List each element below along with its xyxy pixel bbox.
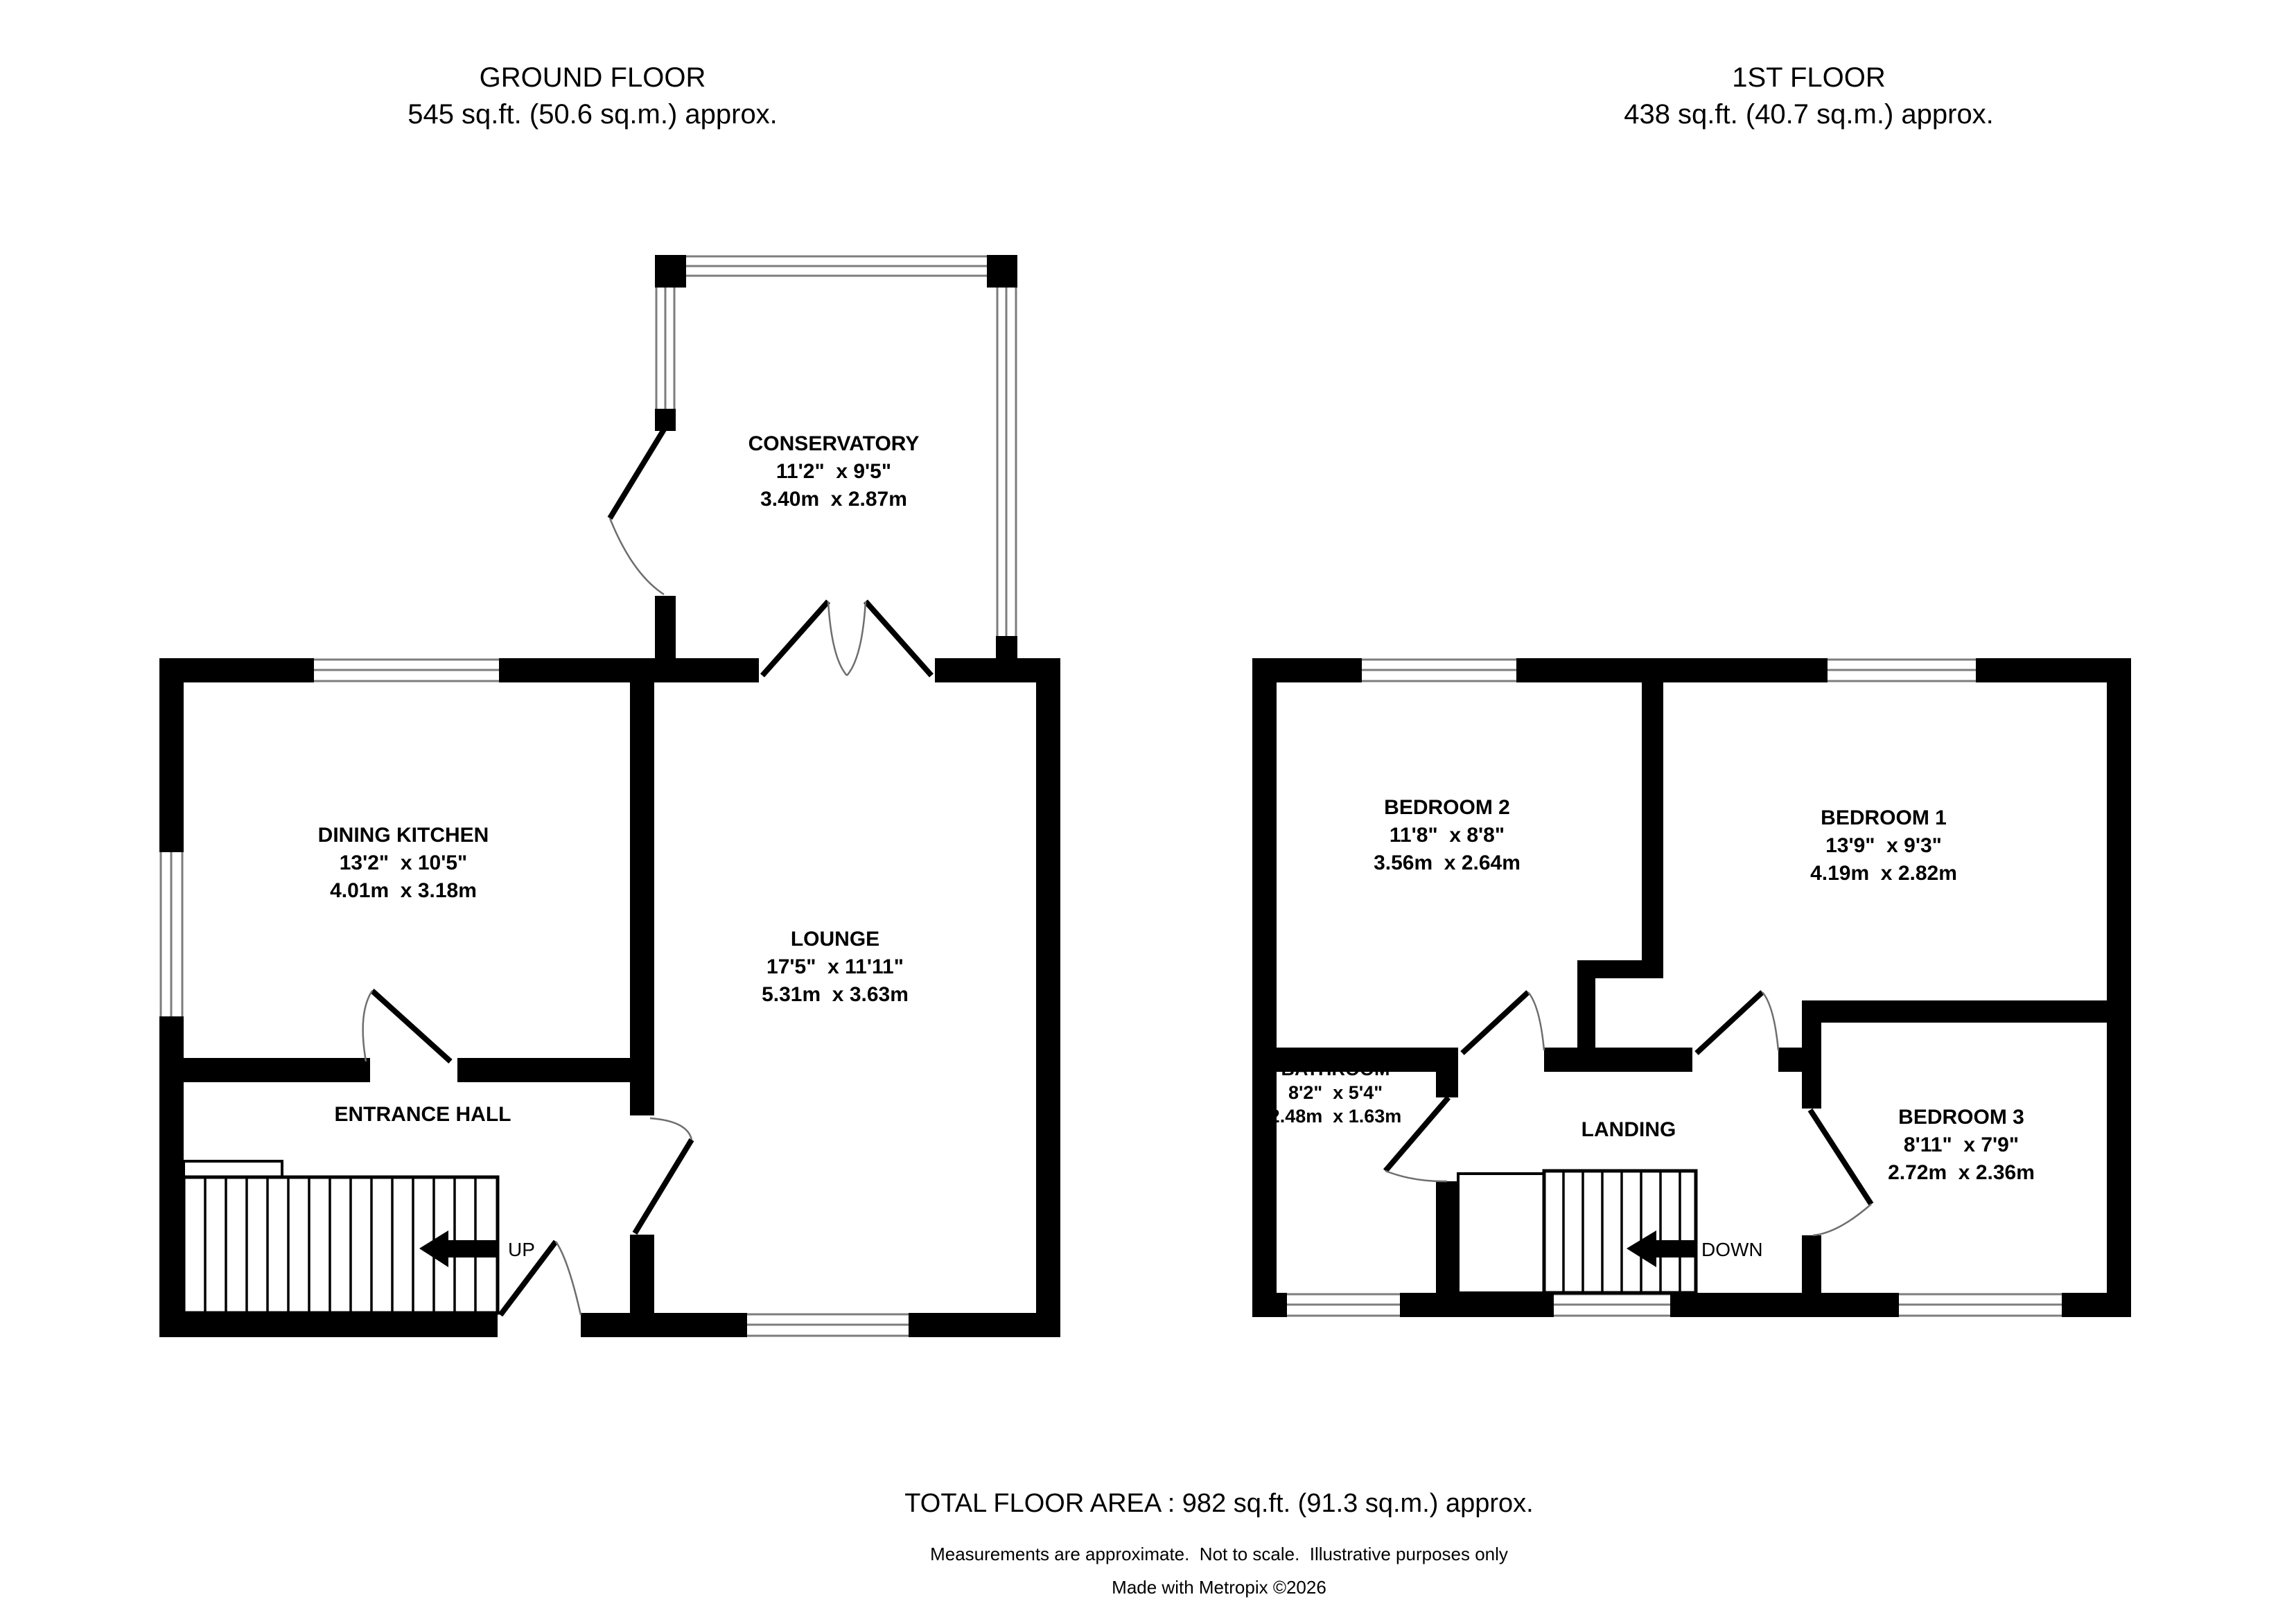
room-label-entrance-hall: ENTRANCE HALL bbox=[335, 1103, 511, 1126]
room-dims-imperial: 13'2" x 10'5" bbox=[340, 851, 468, 874]
room-label-bedroom3: BEDROOM 3 8'11" x 7'9" 2.72m x 2.36m bbox=[1888, 1106, 2035, 1184]
room-dims-metric: 4.01m x 3.18m bbox=[330, 879, 477, 902]
room-dims-imperial: 8'2" x 5'4" bbox=[1288, 1082, 1383, 1103]
room-name: BATHROOM bbox=[1281, 1059, 1390, 1079]
door-swing-arc bbox=[1385, 1171, 1447, 1181]
ground-floor-area: 545 sq.ft. (50.6 sq.m.) approx. bbox=[408, 99, 778, 130]
window bbox=[1828, 658, 1976, 682]
window bbox=[686, 255, 987, 277]
credit-text: Made with Metropix ©2026 bbox=[1112, 1577, 1326, 1598]
door-swing-arc bbox=[363, 991, 372, 1061]
total-floor-area: TOTAL FLOOR AREA : 982 sq.ft. (91.3 sq.m… bbox=[904, 1489, 1533, 1518]
ground-floor-plan: UP CONSERVATORY 11'2" x 9'5" 3.40m x 2.8… bbox=[159, 255, 1060, 1337]
stairs-direction-label: UP bbox=[508, 1239, 535, 1260]
conservatory-side-door bbox=[610, 430, 664, 594]
door-leaf bbox=[762, 601, 828, 676]
room-dims-metric: 5.31m x 3.63m bbox=[762, 983, 909, 1006]
room-name: LOUNGE bbox=[791, 928, 879, 951]
staircase: UP bbox=[184, 1161, 535, 1313]
door bbox=[635, 1118, 692, 1233]
door-leaf bbox=[1697, 992, 1762, 1053]
room-name: BEDROOM 2 bbox=[1384, 796, 1510, 819]
window bbox=[159, 852, 184, 1016]
room-dims-imperial: 17'5" x 11'11" bbox=[766, 955, 904, 978]
first-floor-title: 1ST FLOOR bbox=[1732, 62, 1886, 93]
room-dims-imperial: 13'9" x 9'3" bbox=[1825, 834, 1942, 857]
door-leaf bbox=[1462, 992, 1528, 1053]
window bbox=[747, 1313, 909, 1337]
disclaimer-text: Measurements are approximate. Not to sca… bbox=[930, 1544, 1508, 1564]
bedroom3-door bbox=[1810, 1110, 1871, 1235]
wall bbox=[159, 255, 1060, 1337]
door bbox=[363, 991, 450, 1061]
window bbox=[1362, 658, 1516, 682]
door-swing-arc bbox=[650, 1118, 692, 1140]
window bbox=[655, 288, 676, 409]
window bbox=[1899, 1293, 2062, 1317]
stairs-direction-label: DOWN bbox=[1701, 1239, 1763, 1260]
door-leaf bbox=[866, 601, 931, 676]
room-name: BEDROOM 3 bbox=[1898, 1106, 2024, 1129]
room-label-landing: LANDING bbox=[1581, 1118, 1676, 1141]
room-dims-imperial: 11'8" x 8'8" bbox=[1390, 824, 1505, 847]
room-name: BEDROOM 1 bbox=[1821, 806, 1947, 829]
door-leaf bbox=[1810, 1110, 1871, 1204]
door-swing-arc bbox=[556, 1242, 581, 1315]
room-dims-imperial: 8'11" x 7'9" bbox=[1904, 1133, 2019, 1156]
bedroom2-door bbox=[1462, 992, 1544, 1053]
room-label-dining-kitchen: DINING KITCHEN 13'2" x 10'5" 4.01m x 3.1… bbox=[318, 824, 489, 902]
door-swing-arc bbox=[828, 601, 847, 676]
room-label-lounge: LOUNGE 17'5" x 11'11" 5.31m x 3.63m bbox=[762, 928, 909, 1006]
door-swing-arc bbox=[1813, 1204, 1871, 1235]
room-dims-metric: 2.72m x 2.36m bbox=[1888, 1161, 2035, 1184]
window bbox=[1287, 1293, 1400, 1317]
door-leaf bbox=[635, 1140, 692, 1233]
room-label-conservatory: CONSERVATORY 11'2" x 9'5" 3.40m x 2.87m bbox=[748, 432, 920, 511]
door-leaf bbox=[610, 430, 664, 518]
first-floor-plan: DOWN BEDROOM 2 11'8" x 8'8" 3.56m x 2.64… bbox=[1252, 658, 2131, 1317]
room-label-bedroom1: BEDROOM 1 13'9" x 9'3" 4.19m x 2.82m bbox=[1810, 806, 1957, 885]
door-swing-arc bbox=[1762, 992, 1778, 1050]
door-swing-arc bbox=[847, 601, 866, 676]
room-label-bedroom2: BEDROOM 2 11'8" x 8'8" 3.56m x 2.64m bbox=[1374, 796, 1521, 874]
room-dims-metric: 3.56m x 2.64m bbox=[1374, 851, 1521, 874]
first-floor-area: 438 sq.ft. (40.7 sq.m.) approx. bbox=[1624, 99, 1994, 130]
french-doors bbox=[762, 601, 931, 676]
room-name: DINING KITCHEN bbox=[318, 824, 489, 847]
room-label-bathroom: BATHROOM 8'2" x 5'4" 2.48m x 1.63m bbox=[1270, 1059, 1402, 1127]
window bbox=[314, 658, 499, 682]
door-leaf bbox=[372, 991, 450, 1061]
room-name: CONSERVATORY bbox=[748, 432, 920, 455]
window bbox=[1554, 1293, 1670, 1317]
staircase: DOWN bbox=[1458, 1171, 1763, 1293]
bedroom1-door bbox=[1697, 992, 1778, 1053]
room-dims-metric: 3.40m x 2.87m bbox=[760, 488, 907, 511]
door-swing-arc bbox=[1528, 992, 1544, 1050]
room-dims-metric: 2.48m x 1.63m bbox=[1270, 1106, 1402, 1127]
room-dims-metric: 4.19m x 2.82m bbox=[1810, 862, 1957, 885]
window bbox=[996, 288, 1017, 636]
room-dims-imperial: 11'2" x 9'5" bbox=[776, 460, 891, 483]
door-swing-arc bbox=[610, 518, 664, 594]
floorplan-canvas: GROUND FLOOR 545 sq.ft. (50.6 sq.m.) app… bbox=[0, 0, 2287, 1624]
ground-floor-title: GROUND FLOOR bbox=[480, 62, 706, 93]
